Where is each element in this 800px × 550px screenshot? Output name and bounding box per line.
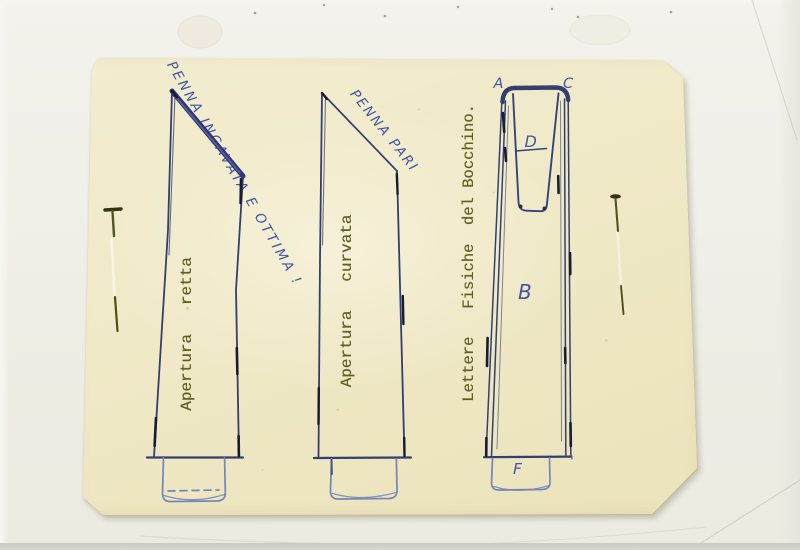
tenon-bottom-restroke (164, 495, 225, 500)
right-edge-line (236, 176, 243, 457)
pin-shaft (113, 211, 115, 236)
left-edge-double-line (323, 98, 326, 245)
pin-hole (323, 4, 325, 6)
pin-hole (551, 8, 553, 10)
pin-hole (670, 11, 673, 14)
paper-dent-crease (112, 238, 115, 296)
ink-drawing: A C D B F ' (0, 0, 800, 550)
window-corner-dot (543, 207, 547, 211)
tenon-outline (331, 459, 398, 499)
bottom-edge-line (484, 457, 571, 458)
letter-f: F (513, 460, 523, 478)
facing-slant-line (322, 93, 397, 171)
letter-c: C (563, 76, 574, 92)
letter-a: A (493, 76, 504, 92)
right-edge-lines (565, 99, 571, 456)
tenon-outline (163, 458, 226, 502)
window-corner-dot (519, 205, 523, 209)
pin-point (115, 297, 118, 331)
pin-head (105, 209, 121, 210)
paper-dent-crease (618, 232, 621, 285)
paper-creases (140, 0, 800, 550)
tenon-dashed-line (168, 490, 219, 491)
mouthpiece-curved-drawing (314, 93, 411, 499)
pin-shaft (616, 199, 619, 232)
facing-slant-overstroke (176, 97, 240, 173)
ink-reinforcement-marks (319, 93, 405, 456)
right-pin (610, 194, 624, 314)
tenon-bottom-restroke (333, 493, 397, 498)
scanned-page: Apertura retta Apertura curvata Lettere … (0, 0, 800, 550)
right-edge-faint-line (561, 101, 562, 441)
pins (105, 194, 624, 331)
paper-crease (752, 0, 797, 140)
paper-crease (690, 480, 800, 550)
pin-hole (254, 12, 257, 15)
window-outline (513, 94, 559, 212)
tick-mark: ' (570, 454, 574, 470)
pin-hole (457, 6, 459, 8)
pin-hole (577, 16, 580, 19)
letter-b: B (518, 280, 532, 304)
letter-d: D (525, 132, 537, 151)
paper-crease (480, 527, 707, 544)
paper-stain (570, 15, 630, 45)
ink-reinforcement-marks (155, 91, 241, 456)
mouthpiece-straight-drawing (147, 91, 243, 502)
pin-hole (384, 15, 387, 18)
left-edge-line (154, 91, 172, 457)
scanner-background-strip (0, 543, 800, 550)
bottom-edge-line (314, 458, 411, 459)
paper-stain (178, 16, 222, 48)
pin-point (621, 286, 624, 314)
